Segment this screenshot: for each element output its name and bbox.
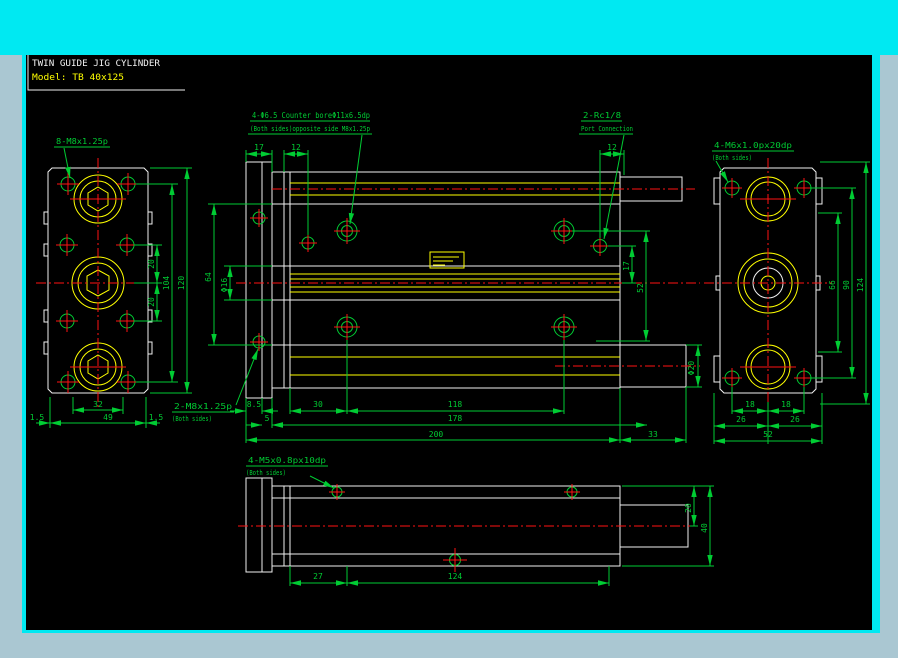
plan-end-plate bbox=[246, 478, 272, 572]
m5-thread-label-2: (Both sides) bbox=[246, 469, 286, 477]
window-frame-top bbox=[0, 0, 898, 55]
dim-20-lower: 20 bbox=[147, 297, 156, 307]
side-centerlines bbox=[236, 189, 700, 366]
dim-18-right: 18 bbox=[781, 400, 791, 409]
window-frame-bottom bbox=[22, 630, 880, 633]
plan-thread-callout: 4-M5x0.8px10dp (Both sides) bbox=[246, 456, 334, 488]
dim-phi20: Φ20 bbox=[687, 361, 696, 376]
rear-thread-callout: 2-M8x1.25p (Both sides) bbox=[172, 349, 258, 423]
dim-20-upper: 20 bbox=[147, 259, 156, 269]
dim-12-right: 12 bbox=[607, 143, 617, 152]
dim-27: 27 bbox=[313, 572, 323, 581]
dim-49: 49 bbox=[103, 413, 113, 422]
plan-bottom-dimensions: 27 124 bbox=[290, 566, 609, 586]
side-end-plate bbox=[246, 162, 272, 398]
rear-centerlines bbox=[704, 158, 832, 402]
dim-17-top: 17 bbox=[254, 143, 264, 152]
port-label-2: Port Connection bbox=[581, 125, 633, 133]
plan-view: 4-M5x0.8px10dp (Both sides) 20 40 27 124 bbox=[238, 456, 714, 586]
side-bottom-dimensions: 8.5 30 118 5 178 200 33 bbox=[230, 340, 686, 443]
title-block: TWIN GUIDE JIG CYLINDER Model: TB 40x125 bbox=[28, 55, 185, 90]
dim-52-rear: 52 bbox=[763, 430, 773, 439]
rear-thread-label-2: (Both sides) bbox=[172, 415, 212, 423]
dim-120: 120 bbox=[177, 276, 186, 291]
dim-26-left: 26 bbox=[736, 415, 746, 424]
dim-118: 118 bbox=[448, 400, 463, 409]
side-body bbox=[272, 172, 620, 388]
rear-thread-callout-m6: 4-M6x1.0px20dp (Both sides) bbox=[712, 141, 794, 182]
dim-5: 5 bbox=[265, 414, 270, 423]
side-guide-rod-lines bbox=[290, 183, 620, 375]
dim-52: 52 bbox=[636, 283, 645, 293]
port-label-1: 2-Rc1/8 bbox=[583, 111, 621, 120]
counterbore-callout: 4-Φ6.5 Counter boreΦ11x6.5dp (Both sides… bbox=[248, 111, 372, 224]
front-view: 20 20 104 120 32 49 1.5 1.5 8-M8x1.25p bbox=[30, 137, 192, 428]
rear-thread-label-1: 2-M8x1.25p bbox=[174, 402, 232, 411]
drawing-model: Model: TB 40x125 bbox=[32, 73, 124, 83]
dim-12-left: 12 bbox=[291, 143, 301, 152]
rear-view: 66 90 124 18 18 26 26 52 4-M6x1.0px20dp bbox=[704, 141, 870, 444]
dim-8-5: 8.5 bbox=[247, 400, 262, 409]
dim-40-plan: 40 bbox=[700, 523, 709, 533]
dim-20-plan: 20 bbox=[684, 503, 693, 513]
drawing-title: TWIN GUIDE JIG CYLINDER bbox=[32, 59, 161, 69]
dim-1-5-left: 1.5 bbox=[30, 413, 45, 422]
dim-200: 200 bbox=[429, 430, 444, 439]
dim-64: 64 bbox=[204, 272, 213, 282]
plan-m5-holes bbox=[329, 484, 580, 572]
dim-32: 32 bbox=[93, 400, 103, 409]
dim-phi16: Φ16 bbox=[220, 278, 229, 293]
side-top-dimensions: 17 12 12 bbox=[246, 143, 624, 238]
cad-drawing: TWIN GUIDE JIG CYLINDER Model: TB 40x125 bbox=[26, 55, 872, 630]
front-thread-callout: 8-M8x1.25p bbox=[54, 137, 110, 178]
drawing-canvas: TWIN GUIDE JIG CYLINDER Model: TB 40x125 bbox=[26, 55, 872, 630]
dim-33: 33 bbox=[648, 430, 658, 439]
side-bolt-holes bbox=[250, 209, 610, 351]
counterbore-label-2: (Both sides)opposite side M8x1.25p bbox=[250, 125, 370, 133]
dim-17-right: 17 bbox=[622, 261, 631, 271]
cad-application-window: TWIN GUIDE JIG CYLINDER Model: TB 40x125 bbox=[0, 0, 898, 658]
dim-90: 90 bbox=[842, 280, 851, 290]
dim-1-5-right: 1.5 bbox=[149, 413, 164, 422]
dim-124-plan: 124 bbox=[448, 572, 463, 581]
side-view: 4-Φ6.5 Counter boreΦ11x6.5dp (Both sides… bbox=[172, 111, 702, 443]
counterbore-label-1: 4-Φ6.5 Counter boreΦ11x6.5dp bbox=[252, 111, 370, 120]
front-thread-label: 8-M8x1.25p bbox=[56, 137, 108, 146]
dim-104: 104 bbox=[162, 276, 171, 291]
m6-thread-label-1: 4-M6x1.0px20dp bbox=[714, 141, 792, 150]
dim-178: 178 bbox=[448, 414, 463, 423]
side-right-dimensions: 17 52 Φ20 bbox=[572, 231, 702, 387]
port-callout: 2-Rc1/8 Port Connection bbox=[579, 111, 633, 239]
dim-26-right: 26 bbox=[790, 415, 800, 424]
dim-124-rear: 124 bbox=[856, 278, 865, 293]
m6-thread-label-2: (Both sides) bbox=[712, 154, 752, 162]
dim-18-left: 18 bbox=[745, 400, 755, 409]
dim-66: 66 bbox=[828, 280, 837, 290]
m5-thread-label-1: 4-M5x0.8px10dp bbox=[248, 456, 326, 465]
window-frame-right bbox=[872, 0, 880, 633]
dim-30: 30 bbox=[313, 400, 323, 409]
